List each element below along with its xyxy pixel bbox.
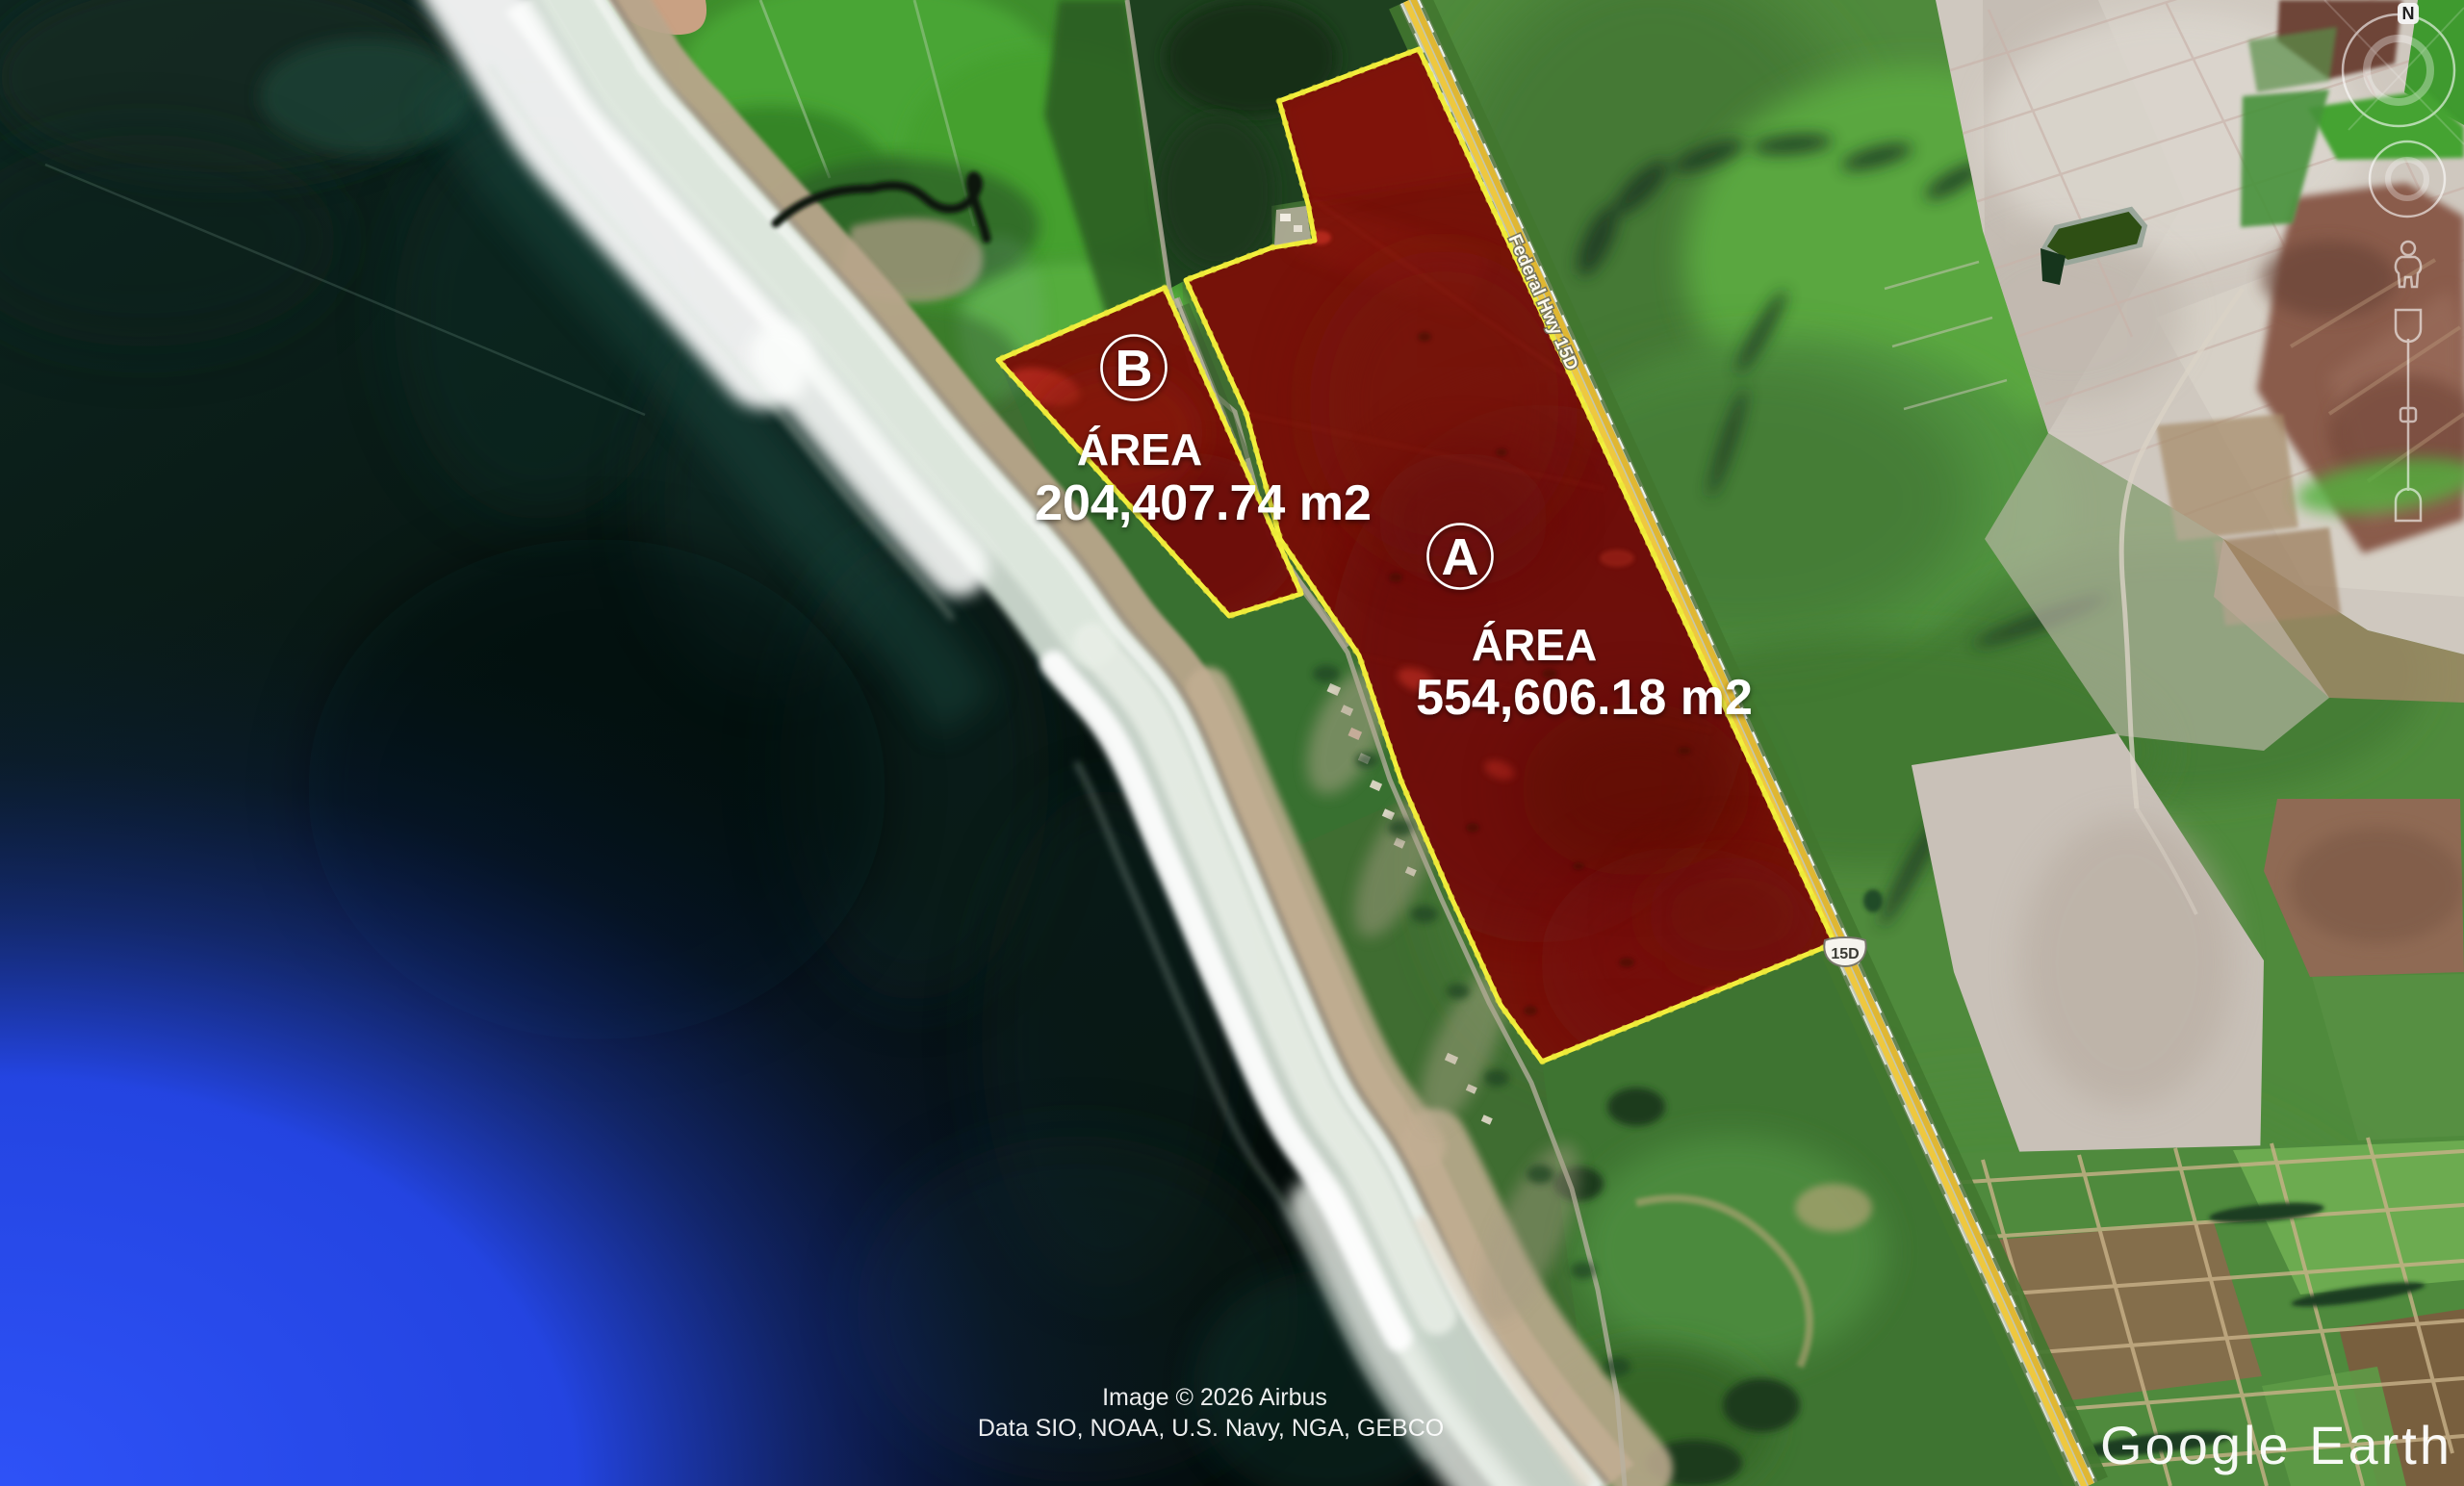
- svg-text:A: A: [1442, 528, 1479, 586]
- svg-text:15D: 15D: [1831, 946, 1859, 962]
- svg-text:Image © 2026 Airbus: Image © 2026 Airbus: [1102, 1384, 1327, 1411]
- svg-text:Google Earth: Google Earth: [2100, 1415, 2452, 1475]
- svg-text:204,407.74 m2: 204,407.74 m2: [1035, 475, 1372, 531]
- svg-text:ÁREA: ÁREA: [1077, 424, 1202, 474]
- svg-text:N: N: [2402, 4, 2415, 23]
- svg-text:Data SIO, NOAA, U.S. Navy, NGA: Data SIO, NOAA, U.S. Navy, NGA, GEBCO: [978, 1415, 1444, 1442]
- svg-text:ÁREA: ÁREA: [1472, 620, 1597, 670]
- svg-text:554,606.18 m2: 554,606.18 m2: [1416, 670, 1753, 726]
- svg-text:B: B: [1116, 340, 1153, 397]
